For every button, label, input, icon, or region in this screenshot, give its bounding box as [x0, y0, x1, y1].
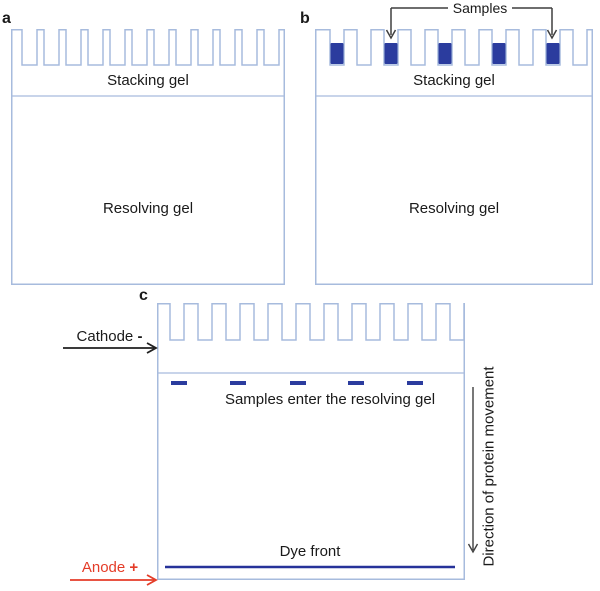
- protein-band: [290, 381, 306, 385]
- gel-outline-with-wells: [12, 30, 285, 285]
- resolving-gel-label-b: Resolving gel: [315, 201, 593, 216]
- anode-text: Anode: [82, 559, 125, 576]
- protein-band: [171, 381, 187, 385]
- stacking-gel-label-a: Stacking gel: [11, 73, 285, 88]
- protein-band: [407, 381, 423, 385]
- sample-in-well: [547, 43, 560, 64]
- gel-outline-with-wells: [316, 30, 593, 285]
- sample-in-well: [493, 43, 506, 64]
- gel-cassette-c: [157, 303, 465, 580]
- samples-label: Samples: [430, 1, 530, 15]
- gel-cassette-b: [315, 29, 593, 285]
- sample-in-well: [331, 43, 344, 64]
- panel-c-label: c: [139, 288, 148, 304]
- sample-in-well: [385, 43, 398, 64]
- direction-of-protein-movement-label: Direction of protein movement: [481, 362, 498, 572]
- cathode-text: Cathode: [77, 328, 134, 345]
- resolving-gel-label-a: Resolving gel: [11, 201, 285, 216]
- cathode-label: Cathode -: [63, 329, 156, 344]
- gel-cassette-a: [11, 29, 285, 285]
- cathode-arrowhead-icon: [147, 343, 156, 353]
- anode-arrowhead-icon: [147, 575, 156, 585]
- stacking-gel-label-b: Stacking gel: [315, 73, 593, 88]
- protein-band: [230, 381, 246, 385]
- anode-label: Anode +: [65, 560, 155, 575]
- protein-band: [348, 381, 364, 385]
- panel-a-label: a: [2, 11, 11, 27]
- plus-symbol: +: [129, 559, 138, 576]
- panel-b-label: b: [300, 11, 310, 27]
- sample-in-well: [439, 43, 452, 64]
- gel-electrophoresis-figure: a b c Stacking gel Resolving gel Stackin…: [0, 0, 600, 591]
- direction-arrowhead-icon: [469, 544, 478, 552]
- samples-enter-label: Samples enter the resolving gel: [217, 392, 443, 407]
- gel-outline-with-wells: [158, 304, 465, 580]
- dye-front-label: Dye front: [250, 544, 370, 559]
- minus-symbol: -: [137, 328, 142, 345]
